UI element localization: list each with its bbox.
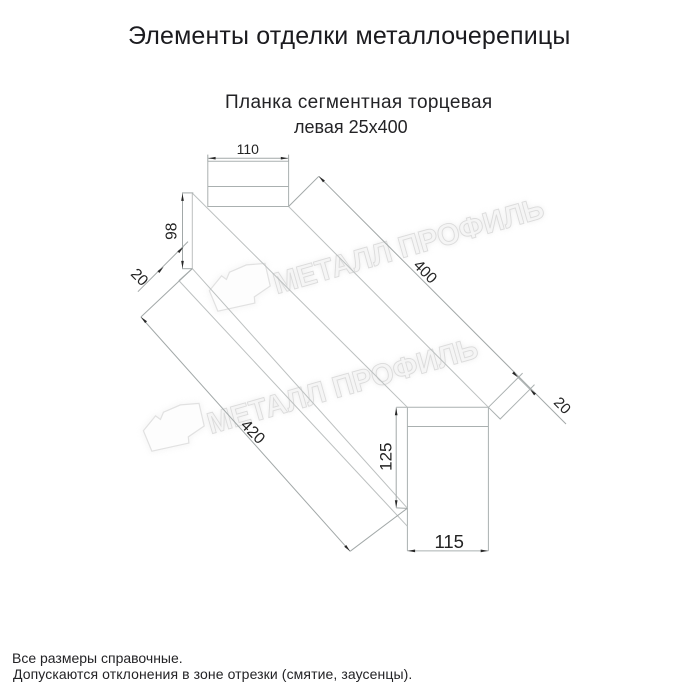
svg-text:98: 98 [164,223,181,240]
svg-text:115: 115 [434,531,464,552]
svg-text:20: 20 [127,265,151,289]
svg-text:110: 110 [237,141,260,157]
svg-text:20: 20 [550,394,574,418]
svg-text:125: 125 [377,443,396,471]
